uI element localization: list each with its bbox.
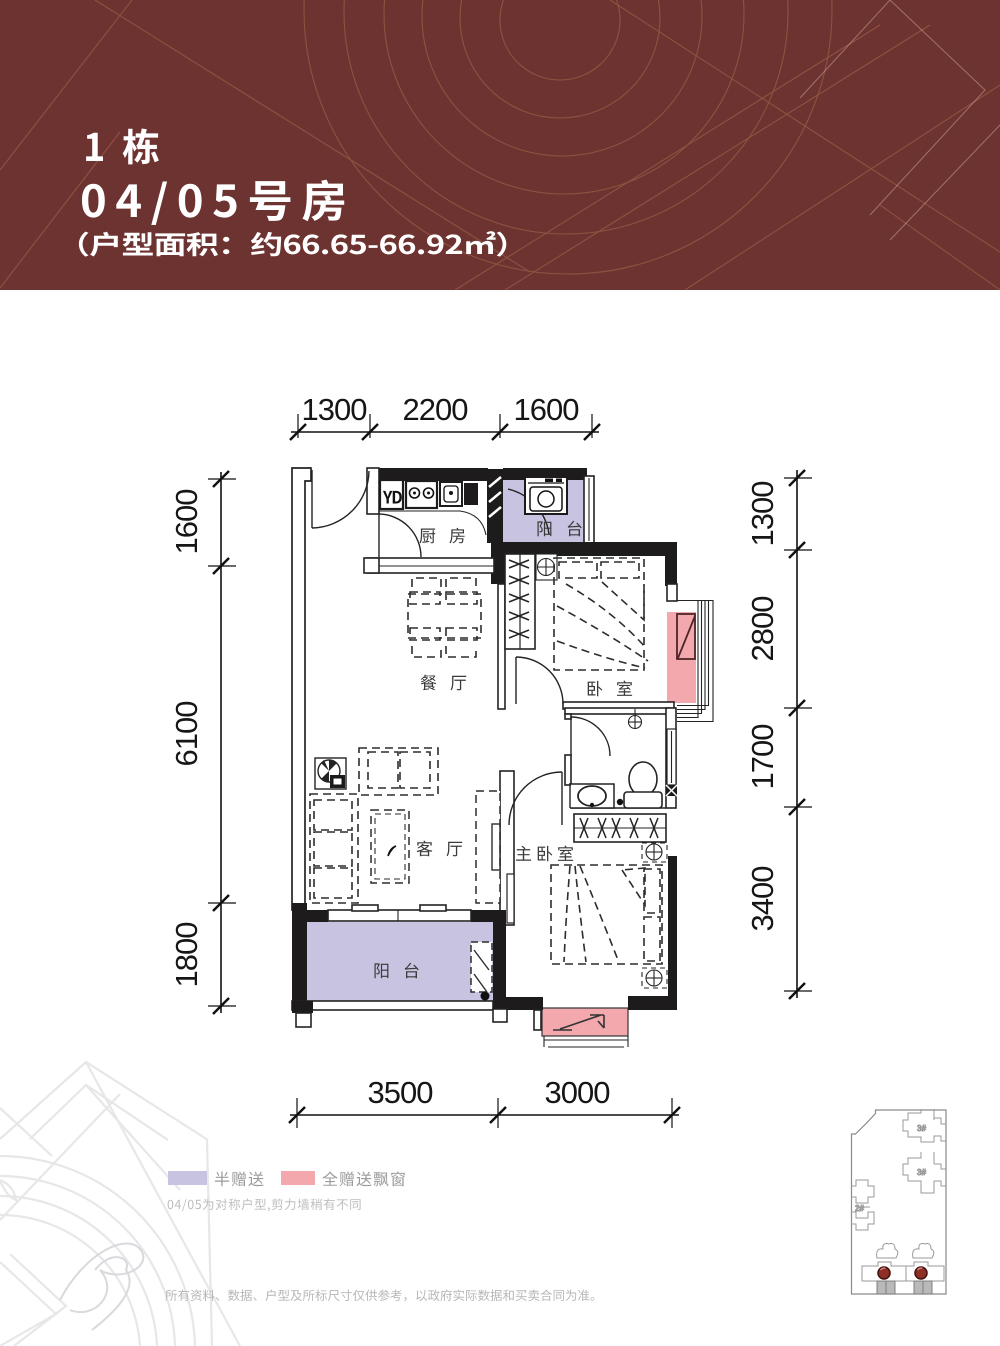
svg-text:2#: 2#: [855, 1204, 864, 1213]
svg-text:3400: 3400: [745, 866, 780, 932]
svg-text:1300: 1300: [745, 481, 780, 547]
svg-text:1600: 1600: [514, 392, 580, 427]
svg-text:1700: 1700: [745, 724, 780, 790]
svg-text:3#: 3#: [917, 1168, 926, 1177]
svg-text:1800: 1800: [169, 922, 204, 988]
svg-text:2800: 2800: [745, 596, 780, 662]
svg-text:3#: 3#: [917, 1124, 926, 1133]
svg-text:6100: 6100: [169, 701, 204, 767]
svg-text:2200: 2200: [403, 392, 469, 427]
svg-text:3000: 3000: [545, 1075, 611, 1110]
svg-text:3500: 3500: [368, 1075, 434, 1110]
svg-text:1300: 1300: [302, 392, 368, 427]
svg-text:1600: 1600: [169, 489, 204, 555]
